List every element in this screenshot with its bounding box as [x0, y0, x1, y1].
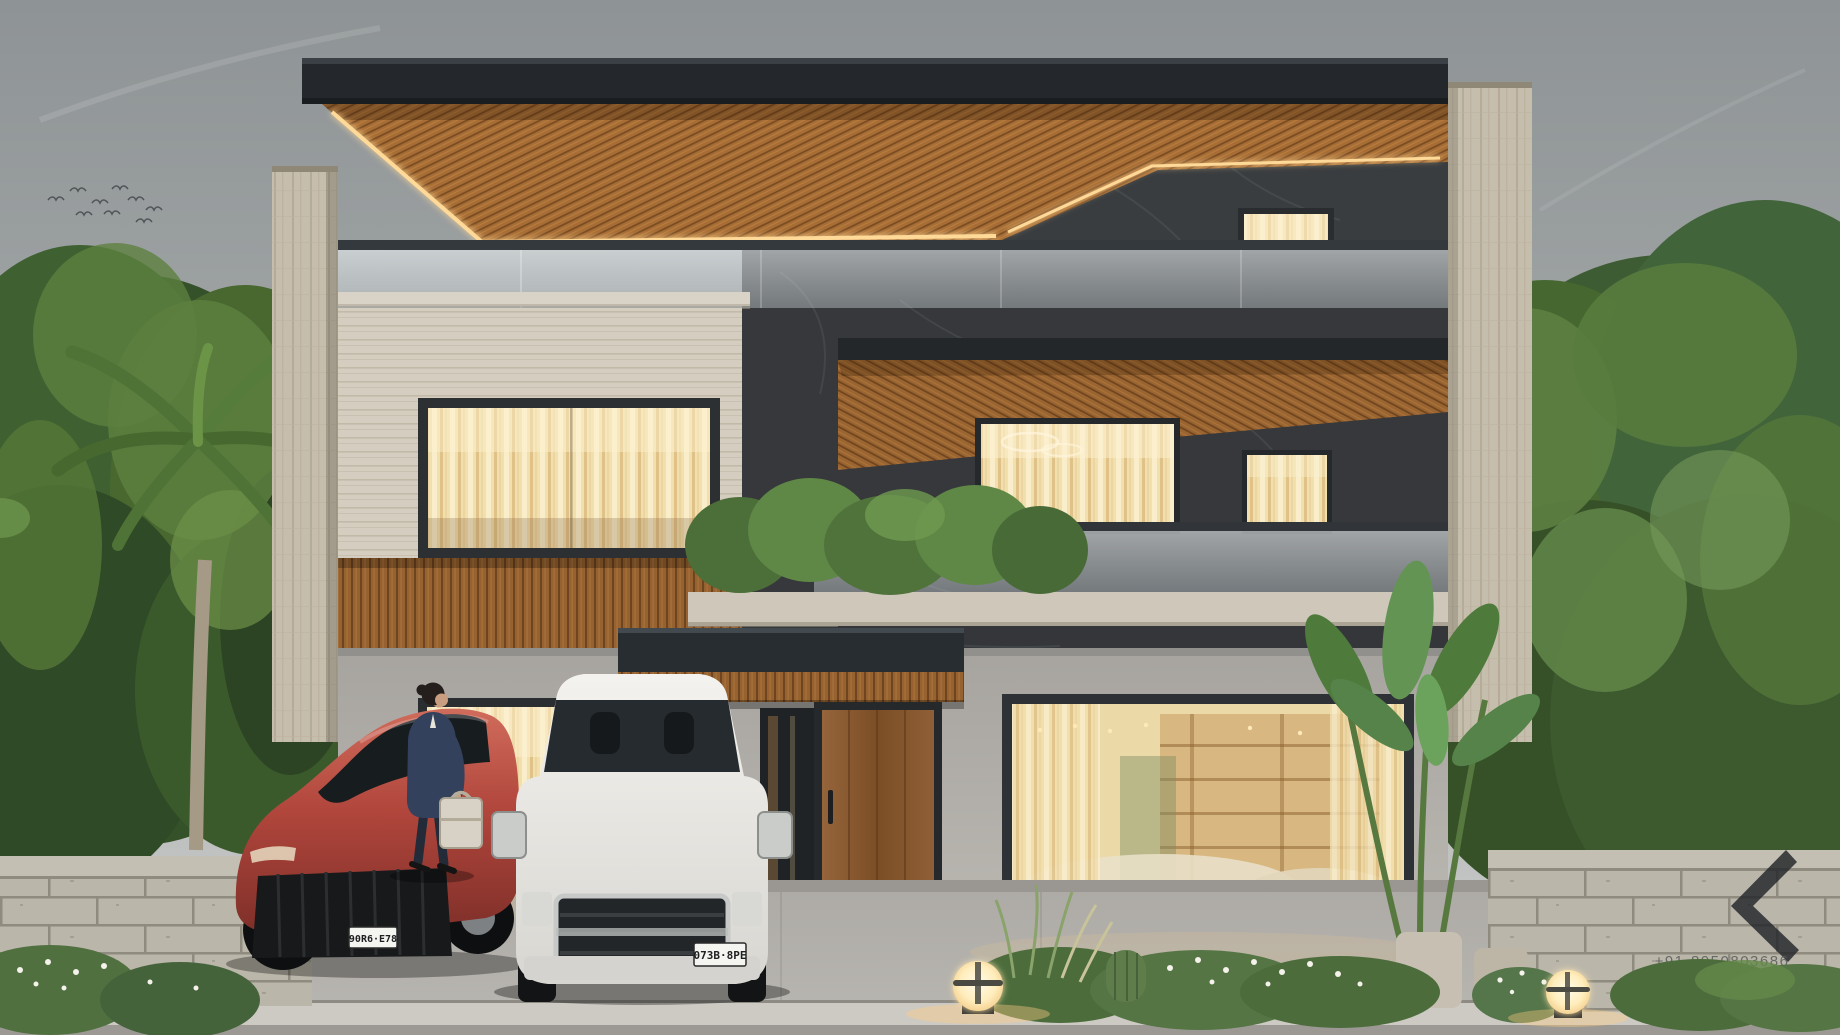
left-stone-pillar [272, 166, 338, 742]
cactus [1106, 950, 1146, 1002]
truck-headlight [732, 892, 762, 926]
truck-windshield [544, 700, 740, 772]
balcony-slab-band [688, 592, 1448, 627]
truck-mirror [758, 812, 792, 858]
hedge-right [1610, 959, 1840, 1032]
balcony-window-right [1242, 450, 1332, 534]
truck-plate-text: 073B·8PE [694, 949, 747, 962]
roof-fascia [302, 58, 1448, 104]
briefcase [440, 793, 482, 849]
upper-left-window [418, 398, 720, 558]
balcony-canopy-fascia [838, 338, 1448, 360]
render-canvas: +91-8950803686 [0, 0, 1840, 1035]
entry-sidelight [760, 708, 816, 892]
red-car-plate-text: 90R6·E78 [349, 934, 397, 945]
door-handle [828, 790, 833, 824]
entry-door [814, 702, 942, 892]
architectural-render: +91-8950803686 [0, 0, 1840, 1035]
truck-headlight [522, 892, 552, 926]
truck-mirror [492, 812, 526, 858]
